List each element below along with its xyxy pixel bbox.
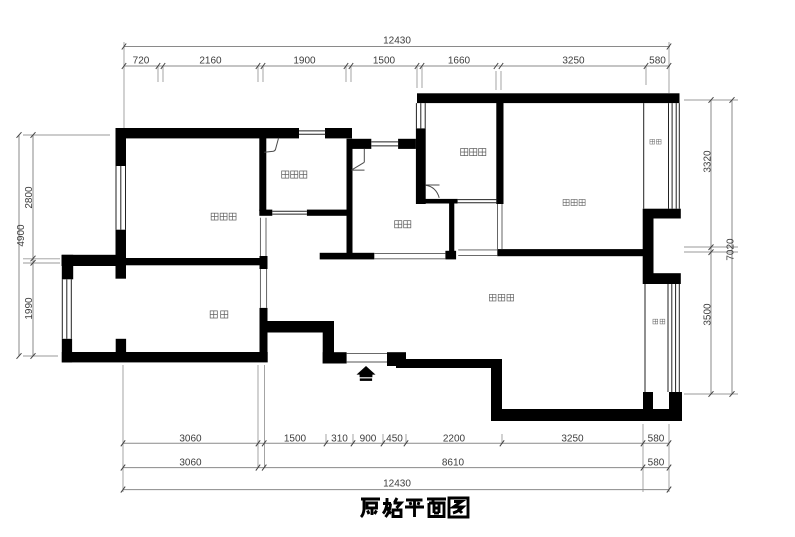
svg-text:7020: 7020 bbox=[725, 238, 736, 261]
svg-text:1500: 1500 bbox=[373, 56, 396, 67]
svg-text:3500: 3500 bbox=[702, 303, 713, 326]
svg-text:3250: 3250 bbox=[561, 433, 584, 444]
svg-text:1990: 1990 bbox=[24, 297, 35, 320]
svg-text:4900: 4900 bbox=[16, 224, 27, 247]
svg-text:2800: 2800 bbox=[24, 186, 35, 209]
svg-text:580: 580 bbox=[649, 56, 666, 67]
svg-text:900: 900 bbox=[360, 433, 377, 444]
svg-text:310: 310 bbox=[331, 433, 348, 444]
svg-text:12430: 12430 bbox=[383, 35, 411, 46]
svg-text:3250: 3250 bbox=[562, 56, 585, 67]
svg-text:3320: 3320 bbox=[702, 150, 713, 173]
svg-text:3060: 3060 bbox=[179, 433, 202, 444]
svg-text:580: 580 bbox=[648, 433, 665, 444]
svg-text:450: 450 bbox=[386, 433, 403, 444]
svg-text:1900: 1900 bbox=[293, 56, 316, 67]
svg-text:1500: 1500 bbox=[284, 433, 307, 444]
svg-text:12430: 12430 bbox=[383, 478, 411, 489]
svg-text:580: 580 bbox=[648, 458, 665, 469]
svg-text:1660: 1660 bbox=[448, 56, 471, 67]
svg-text:8610: 8610 bbox=[442, 458, 465, 469]
svg-text:2200: 2200 bbox=[443, 433, 466, 444]
svg-text:3060: 3060 bbox=[179, 458, 202, 469]
svg-text:2160: 2160 bbox=[199, 56, 222, 67]
svg-text:720: 720 bbox=[133, 56, 150, 67]
